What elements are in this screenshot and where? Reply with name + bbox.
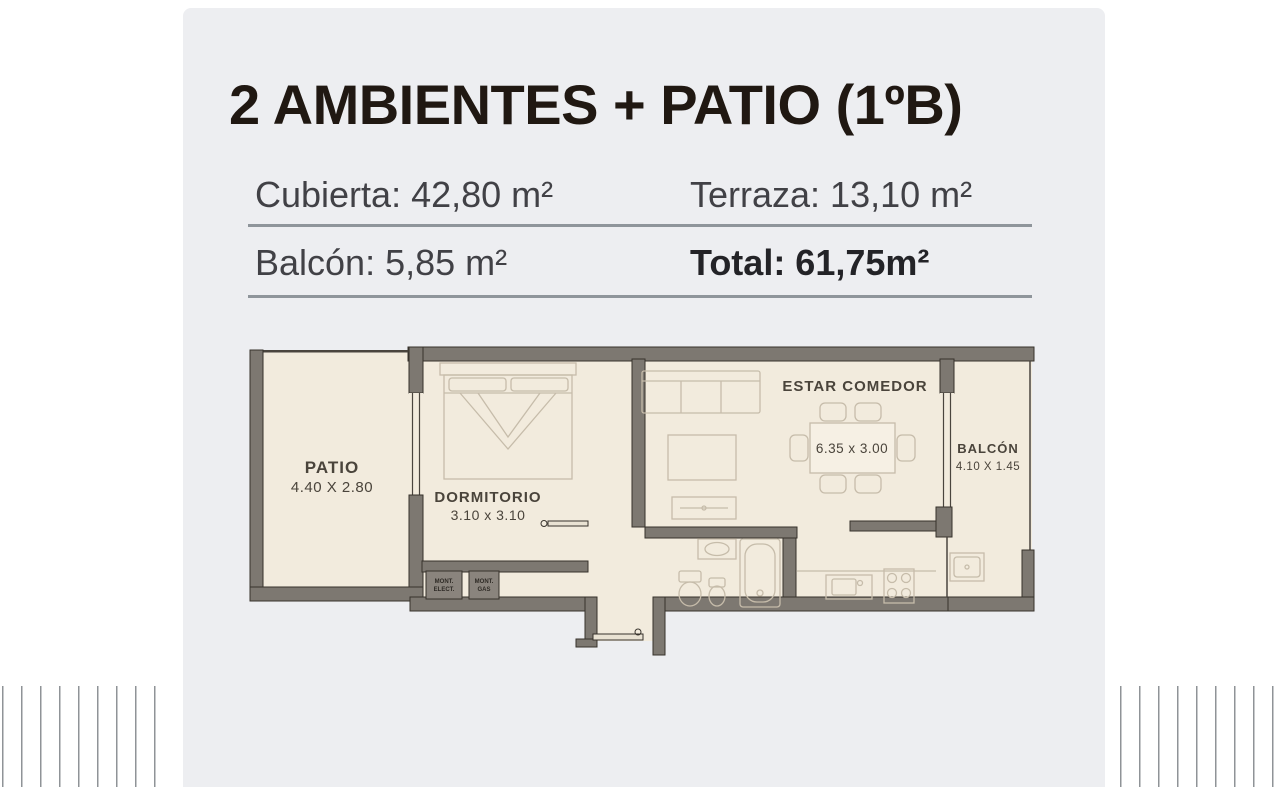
mont-gas-label-1: MONT. — [475, 579, 494, 585]
mont-elect-label-1: MONT. — [435, 579, 454, 585]
label-patio: PATIO — [305, 458, 359, 477]
service-boxes: MONT. ELECT. MONT. GAS — [426, 571, 499, 599]
entry-door-leaf — [593, 634, 643, 640]
decor-lines-bottom-left — [2, 686, 168, 787]
floor-plan-svg: MONT. ELECT. MONT. GAS PATIO 4.40 X 2.80… — [248, 345, 1038, 657]
spec-total: Total: 61,75m² — [690, 241, 929, 285]
dims-patio: 4.40 X 2.80 — [291, 479, 373, 496]
divider-top — [248, 224, 1032, 227]
bedroom-door-leaf — [548, 521, 588, 526]
dims-estar-comedor: 6.35 x 3.00 — [816, 441, 888, 456]
spec-row-2: Balcón: 5,85 m² Total: 61,75m² — [247, 241, 1037, 285]
label-balcon: BALCÓN — [957, 441, 1019, 456]
decor-lines-bottom-right — [1120, 686, 1280, 787]
label-dormitorio: DORMITORIO — [434, 489, 541, 506]
mont-elect-box — [426, 571, 462, 599]
spec-cubierta: Cubierta: 42,80 m² — [255, 173, 553, 217]
spec-balcon: Balcón: 5,85 m² — [255, 241, 507, 285]
dims-dormitorio: 3.10 x 3.10 — [451, 507, 526, 523]
mont-elect-label-2: ELECT. — [434, 587, 455, 593]
spec-row-1: Cubierta: 42,80 m² Terraza: 13,10 m² — [247, 173, 1037, 217]
divider-bottom — [248, 295, 1032, 298]
spec-terraza: Terraza: 13,10 m² — [690, 173, 972, 217]
brochure-card: 2 AMBIENTES + PATIO (1ºB) Cubierta: 42,8… — [183, 8, 1105, 787]
page-title: 2 AMBIENTES + PATIO (1ºB) — [229, 74, 1069, 136]
mont-gas-box — [469, 571, 499, 599]
label-estar-comedor: ESTAR COMEDOR — [782, 378, 927, 395]
mont-gas-label-2: GAS — [477, 587, 490, 593]
dims-balcon: 4.10 X 1.45 — [956, 461, 1020, 473]
floor-plan: MONT. ELECT. MONT. GAS PATIO 4.40 X 2.80… — [248, 345, 1038, 657]
